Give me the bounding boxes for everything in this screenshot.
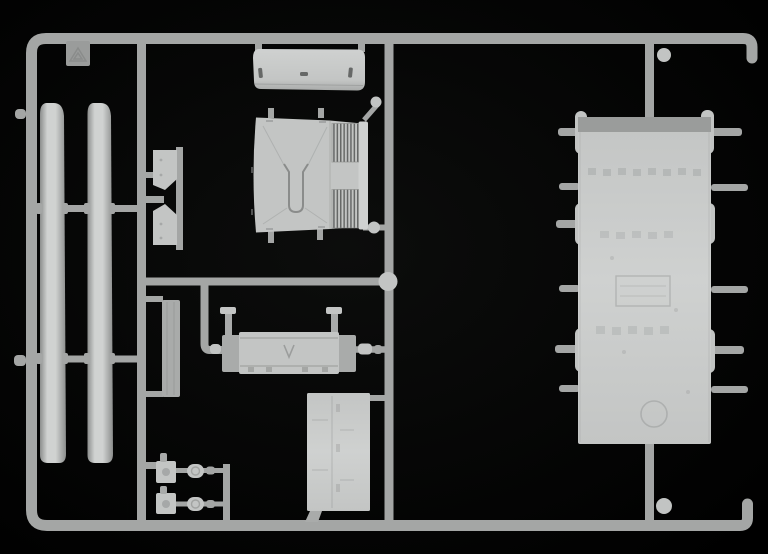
hull-panel-body [578, 117, 711, 444]
hood-roof-panel [253, 49, 365, 91]
roof-strip-a [40, 103, 66, 463]
mold-stamp-tab [66, 41, 90, 66]
sprue-photo [0, 0, 768, 554]
lantern-a [187, 464, 204, 478]
sprue-scene [0, 0, 768, 554]
chassis-end-left [222, 335, 241, 372]
chassis-end-right [337, 335, 356, 372]
side-door-panel [305, 393, 370, 522]
radiator-slat [162, 300, 180, 397]
hull-panel-top-edge [578, 117, 711, 132]
radiator-grille-lower [332, 190, 359, 229]
radiator-grille-upper [332, 124, 359, 163]
roof-strip-b [88, 103, 114, 463]
cab-side-flange [359, 122, 369, 230]
lantern-b [187, 497, 204, 511]
cab-front-panel [252, 118, 368, 233]
